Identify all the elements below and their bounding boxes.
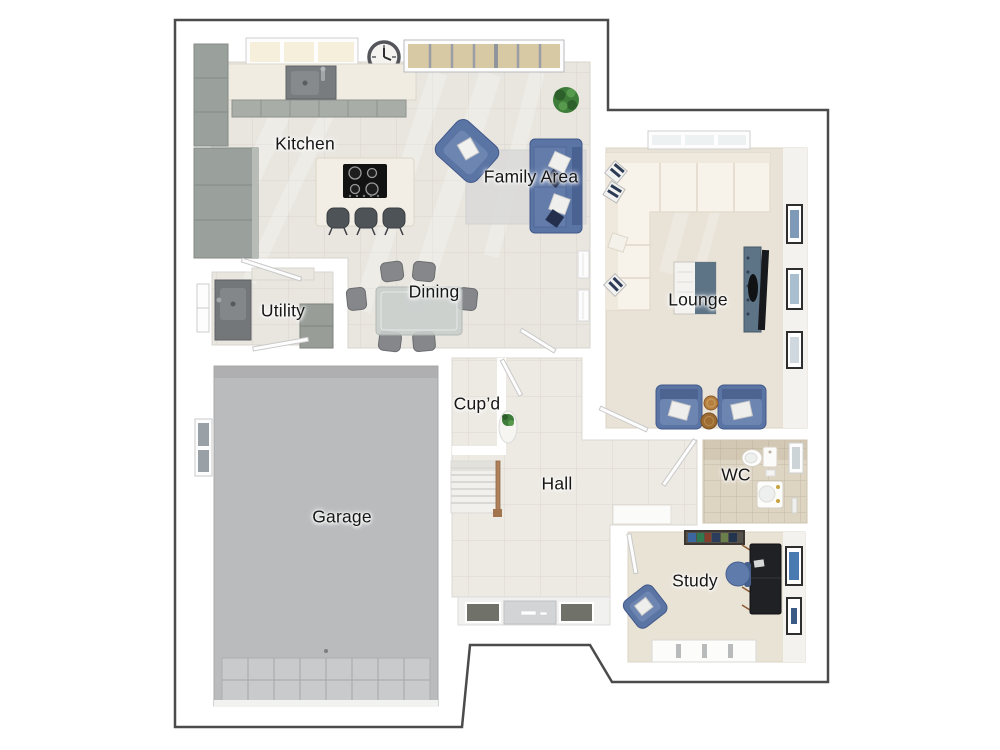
room-label-dining: Dining bbox=[409, 282, 460, 303]
room-label-garage: Garage bbox=[312, 507, 372, 528]
garage-floor bbox=[214, 366, 438, 706]
room-label-cupboard: Cup’d bbox=[454, 394, 501, 415]
room-label-study: Study bbox=[672, 571, 718, 592]
kitchen-base-units bbox=[194, 148, 258, 258]
hall-console bbox=[613, 505, 671, 524]
kitchen-tall-units bbox=[194, 44, 228, 146]
floor-plan-canvas: Kitchen Family Area Utility Dining Loung… bbox=[0, 0, 1000, 750]
garage-door bbox=[214, 649, 438, 707]
lounge-window bbox=[648, 131, 750, 149]
tv-unit bbox=[744, 247, 769, 332]
room-label-hall: Hall bbox=[542, 474, 573, 495]
stairs bbox=[451, 461, 496, 513]
kitchen-sink bbox=[286, 66, 336, 99]
room-label-wc: WC bbox=[721, 465, 751, 486]
wc-basin bbox=[757, 481, 783, 508]
hall-side-table bbox=[499, 411, 517, 443]
room-label-family-area: Family Area bbox=[484, 167, 579, 188]
floor-plan-drawing bbox=[0, 0, 1000, 750]
kitchen-window bbox=[246, 38, 358, 66]
study-window bbox=[652, 640, 756, 662]
wc-window bbox=[789, 443, 803, 473]
room-label-kitchen: Kitchen bbox=[275, 134, 335, 155]
utility-window bbox=[197, 284, 209, 332]
lounge-pictures bbox=[787, 205, 802, 368]
family-glazing bbox=[404, 40, 564, 72]
study-shelf bbox=[685, 531, 744, 544]
potted-plant bbox=[553, 87, 579, 113]
utility-sink bbox=[215, 280, 251, 340]
wc-towel-rail bbox=[792, 498, 797, 513]
room-label-utility: Utility bbox=[261, 301, 305, 322]
front-door bbox=[458, 597, 610, 625]
room-label-lounge: Lounge bbox=[668, 290, 728, 311]
hob bbox=[343, 164, 387, 198]
study-chair bbox=[726, 562, 751, 587]
garage-window bbox=[195, 419, 212, 476]
